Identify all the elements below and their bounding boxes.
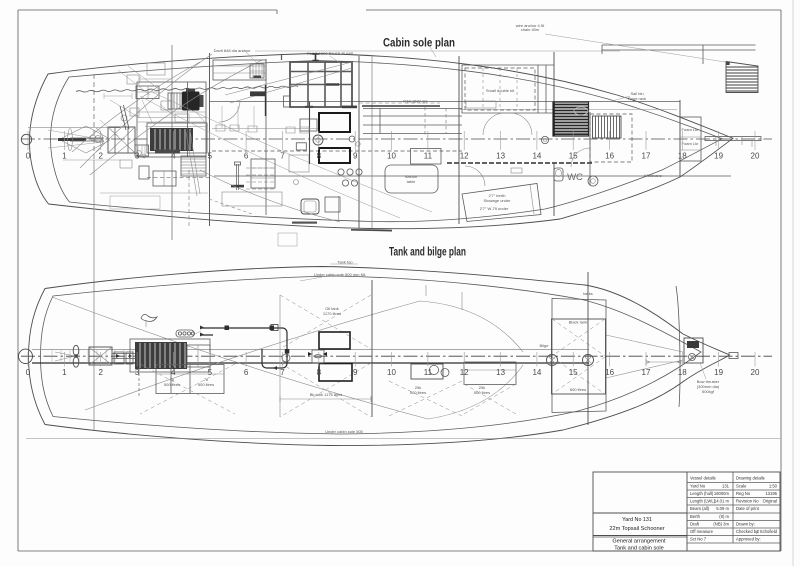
svg-text:14: 14: [532, 368, 541, 377]
svg-text:2: 2: [98, 368, 103, 377]
svg-text:20: 20: [751, 152, 760, 161]
svg-text:12: 12: [460, 152, 469, 161]
svg-text:Under cabin sole 500: Under cabin sole 500: [325, 429, 364, 434]
svg-text:Yard No: Yard No: [690, 484, 706, 489]
svg-text:RULE 1500 BILGE PUMP: RULE 1500 BILGE PUMP: [307, 51, 354, 56]
svg-text:500 litres: 500 litres: [164, 382, 180, 387]
svg-text:13: 13: [496, 368, 505, 377]
svg-text:8: 8: [317, 152, 322, 161]
svg-text:1: 1: [62, 152, 67, 161]
svg-text:chain 40m: chain 40m: [521, 27, 540, 32]
svg-text:15: 15: [569, 152, 578, 161]
svg-text:(NB) 3m: (NB) 3m: [713, 522, 729, 527]
svg-text:4: 4: [171, 368, 176, 377]
svg-text:18: 18: [678, 368, 687, 377]
svg-text:Reg No: Reg No: [736, 491, 751, 496]
svg-text:10: 10: [387, 368, 396, 377]
svg-text:6: 6: [244, 368, 249, 377]
svg-text:Beam (all): Beam (all): [690, 506, 710, 511]
svg-text:5: 5: [208, 152, 213, 161]
svg-text:Length (hull): Length (hull): [690, 491, 714, 496]
svg-text:11: 11: [424, 368, 433, 377]
svg-text:Cabin sole plan: Cabin sole plan: [383, 38, 455, 50]
svg-text:11: 11: [424, 152, 433, 161]
svg-text:Scale: Scale: [736, 484, 747, 489]
svg-text:13195: 13195: [765, 491, 777, 496]
svg-text:Tank and bilge plan: Tank and bilge plan: [389, 247, 466, 259]
svg-text:16000m: 16000m: [714, 491, 730, 496]
svg-text:Length (LWL): Length (LWL): [690, 499, 716, 504]
svg-text:Windvane: Windvane: [644, 173, 663, 178]
svg-text:Yard No 131: Yard No 131: [622, 517, 652, 523]
svg-text:131: 131: [722, 484, 730, 489]
svg-text:WC: WC: [567, 172, 583, 183]
svg-text:Draft: Draft: [690, 522, 700, 527]
svg-text:16: 16: [605, 368, 614, 377]
svg-text:Bk tank 1176 litres: Bk tank 1176 litres: [310, 392, 343, 397]
svg-text:500 litres: 500 litres: [410, 390, 426, 395]
svg-text:17: 17: [642, 152, 651, 161]
svg-text:500 litres: 500 litres: [474, 390, 490, 395]
svg-text:tanks: tanks: [583, 291, 593, 296]
svg-text:2'7" W-79 under: 2'7" W-79 under: [480, 206, 509, 211]
svg-text:Rope rack: Rope rack: [628, 96, 646, 101]
svg-text:19: 19: [714, 152, 723, 161]
svg-text:Sct No 7: Sct No 7: [690, 537, 707, 542]
svg-text:Under cabin sole 500 mm ML: Under cabin sole 500 mm ML: [314, 272, 367, 277]
svg-text:table: table: [407, 179, 416, 184]
svg-text:Berth: Berth: [690, 514, 701, 519]
svg-text:500kgf: 500kgf: [702, 389, 715, 394]
svg-text:22m Topsail Schooner: 22m Topsail Schooner: [609, 526, 664, 532]
svg-text:6: 6: [244, 152, 249, 161]
svg-text:16: 16: [605, 152, 614, 161]
svg-text:Davit 848 dia anchor: Davit 848 dia anchor: [214, 48, 251, 53]
svg-text:Drawn by:: Drawn by:: [736, 522, 755, 527]
svg-text:Vessel details: Vessel details: [690, 476, 716, 481]
svg-text:14.01 m: 14.01 m: [714, 499, 730, 504]
svg-text:3: 3: [135, 368, 140, 377]
svg-text:5.09 m: 5.09 m: [716, 506, 729, 511]
svg-text:3: 3: [135, 152, 140, 161]
svg-text:13: 13: [496, 152, 505, 161]
svg-text:1: 1: [62, 368, 67, 377]
svg-text:1170 litres: 1170 litres: [323, 311, 341, 316]
svg-text:2: 2: [98, 152, 103, 161]
svg-text:J Schofield: J Schofield: [757, 529, 778, 534]
svg-text:18: 18: [678, 152, 687, 161]
svg-text:P.63 1587 grt: P.63 1587 grt: [403, 99, 427, 104]
svg-text:20: 20: [751, 368, 760, 377]
svg-text:Tank and cabin sole: Tank and cabin sole: [614, 546, 663, 552]
svg-text:7: 7: [280, 368, 285, 377]
svg-text:Off measure: Off measure: [690, 529, 714, 534]
svg-text:Drawing details: Drawing details: [736, 476, 765, 481]
svg-text:14: 14: [532, 152, 541, 161]
svg-text:9: 9: [353, 368, 358, 377]
svg-text:600 litres: 600 litres: [570, 387, 586, 392]
svg-text:Small double kit: Small double kit: [486, 88, 515, 93]
svg-text:0: 0: [26, 152, 31, 161]
svg-text:0: 0: [26, 368, 31, 377]
svg-text:15: 15: [569, 368, 578, 377]
svg-text:7: 7: [280, 152, 285, 161]
svg-text:Approved by:: Approved by:: [736, 537, 761, 542]
svg-text:12: 12: [460, 368, 469, 377]
svg-text:17: 17: [642, 368, 651, 377]
svg-text:4: 4: [171, 152, 176, 161]
svg-text:Revision No: Revision No: [736, 499, 759, 504]
svg-text:10: 10: [387, 152, 396, 161]
svg-text:500 litres: 500 litres: [198, 382, 214, 387]
svg-text:1:50: 1:50: [769, 484, 778, 489]
svg-text:Date of print: Date of print: [736, 506, 760, 511]
svg-text:Original: Original: [763, 499, 777, 504]
svg-text:Foam Lkr: Foam Lkr: [682, 141, 700, 146]
svg-text:Foam Lkr: Foam Lkr: [682, 127, 700, 132]
svg-text:(9) m: (9) m: [719, 514, 729, 519]
svg-text:5: 5: [208, 368, 213, 377]
svg-text:Bilge: Bilge: [540, 343, 550, 348]
svg-text:Black tank: Black tank: [569, 320, 587, 325]
svg-text:General arrangement: General arrangement: [612, 539, 666, 545]
svg-text:8: 8: [317, 368, 322, 377]
svg-text:9: 9: [353, 152, 358, 161]
svg-text:Stowage under: Stowage under: [484, 198, 512, 203]
svg-text:19: 19: [714, 368, 723, 377]
